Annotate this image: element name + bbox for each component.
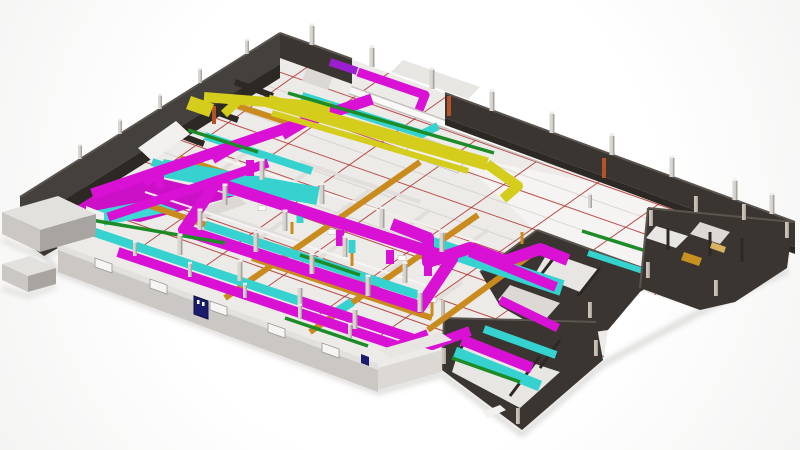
model-canvas	[0, 0, 800, 450]
duct-riser-rust	[212, 106, 216, 124]
door-frame-rust	[602, 158, 606, 178]
bim-model-render	[0, 0, 800, 450]
door-frame-rust	[447, 96, 451, 116]
